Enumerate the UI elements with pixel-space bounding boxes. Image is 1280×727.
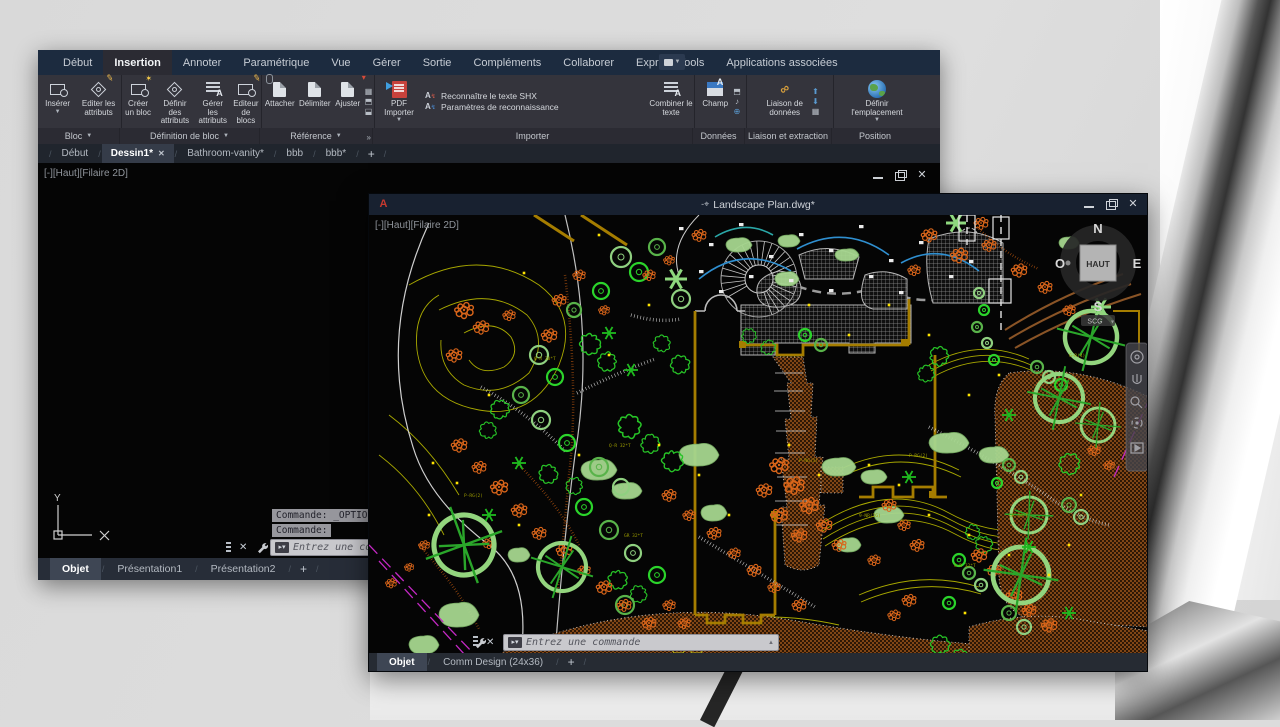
ole-object-icon[interactable]: ♪ xyxy=(735,98,739,106)
xref-frame-icon[interactable]: ▦ xyxy=(365,88,373,96)
landscape-plan-window: A -⌖ Landscape Plan.dwg* ✕ xyxy=(368,193,1148,672)
ribbon-tab-insertion[interactable]: Insertion xyxy=(103,50,171,75)
close-icon[interactable]: ✕ xyxy=(1127,199,1139,210)
svg-text:Q-R 32*T: Q-R 32*T xyxy=(609,443,631,449)
svg-text:G-R 30*T: G-R 30*T xyxy=(534,356,556,362)
minimize-icon[interactable] xyxy=(872,170,884,181)
pencil-icon: ✎ xyxy=(253,73,262,84)
data-link-button[interactable]: ∞ Liaison de données xyxy=(761,77,809,126)
workspace-icon xyxy=(664,59,673,66)
close-icon[interactable]: ✕ xyxy=(239,542,247,553)
recognize-shx-button[interactable]: Reconnaître le texte SHX xyxy=(425,91,537,101)
new-layout-button[interactable]: + xyxy=(560,653,583,671)
window-title: Landscape Plan.dwg* xyxy=(713,199,815,211)
define-attributes-button[interactable]: Définir des attributs xyxy=(156,77,194,126)
block-editor-button[interactable]: ✎ Editeur de blocs xyxy=(232,77,260,126)
adjust-button[interactable]: ▾ Ajuster xyxy=(334,77,362,126)
document-tab-bar: /Début/Dessin1*✕/Bathroom-vanity*/bbb/bb… xyxy=(38,144,940,163)
panel-caption-importer[interactable]: Importer xyxy=(373,128,693,144)
ribbon-tab-sortie[interactable]: Sortie xyxy=(412,50,463,75)
scroll-up-icon[interactable]: ▲ xyxy=(768,640,774,646)
text-lines-icon xyxy=(664,82,678,96)
block-icon xyxy=(131,84,146,95)
panel-bloc: Insérer ▼ ✎ Editer les attributs xyxy=(40,75,122,128)
underlay-layers-icon[interactable]: ⬒ xyxy=(365,98,373,106)
paperclip-icon xyxy=(266,74,273,84)
layout-tab-bar-front: Objet/Comm Design (24x36)/+/ xyxy=(369,653,1147,671)
compass-west[interactable]: O xyxy=(1055,256,1065,271)
panel-position: Définir l'emplacement ▼ xyxy=(834,75,920,128)
edit-attributes-button[interactable]: ✎ Editer les attributs xyxy=(77,77,120,126)
ribbon-tab-d-but[interactable]: Début xyxy=(52,50,103,75)
pin-icon: -⌖ xyxy=(701,199,709,211)
ribbon-tab-annoter[interactable]: Annoter xyxy=(172,50,233,75)
insert-block-icon xyxy=(50,84,65,95)
shrubs xyxy=(477,326,1083,653)
panel-caption-bloc[interactable]: Bloc▼ xyxy=(38,128,120,144)
compass-east[interactable]: E xyxy=(1133,256,1142,271)
snap-underlay-icon[interactable]: ⬓ xyxy=(365,108,373,116)
chain-link-icon: ∞ xyxy=(777,81,793,98)
compass-south[interactable]: S xyxy=(1094,299,1103,314)
compass-north[interactable]: N xyxy=(1093,221,1102,236)
ribbon-tab-vue[interactable]: Vue xyxy=(320,50,361,75)
ribbon-tab-param-trique[interactable]: Paramétrique xyxy=(232,50,320,75)
layout-tab-pr-sentation1[interactable]: Présentation1 xyxy=(105,558,194,580)
update-field-icon[interactable]: ⬒ xyxy=(733,88,741,96)
title-bar[interactable]: A -⌖ Landscape Plan.dwg* ✕ xyxy=(369,194,1147,215)
landscape-drawing[interactable]: G-R 30*TP-RG(2)GR 32*T9-NR(2G)G-R 32*TGR… xyxy=(369,215,1147,653)
adjust-marker-icon: ▾ xyxy=(362,74,366,83)
pdf-import-button[interactable]: PDF Importer ▼ xyxy=(376,77,422,126)
svg-text:GR 32*T: GR 32*T xyxy=(624,533,643,539)
document-icon xyxy=(341,82,354,97)
tab-separator: / xyxy=(583,657,588,667)
svg-text:P-RG(2): P-RG(2) xyxy=(909,453,928,459)
close-icon[interactable]: ✕ xyxy=(916,170,928,181)
panel-reference: Attacher Délimiter ▾ Ajuster ▦ ⬒ ⬓ » xyxy=(262,75,375,128)
navigation-bar[interactable] xyxy=(1126,343,1147,471)
combine-text-button[interactable]: Combiner le texte xyxy=(649,77,693,126)
clip-button[interactable]: Délimiter xyxy=(299,77,331,126)
viewport-controls-label[interactable]: [-][Haut][Filaire 2D] xyxy=(375,220,459,231)
layout-tab-pr-sentation2[interactable]: Présentation2 xyxy=(199,558,288,580)
viewport-controls-label[interactable]: [-][Haut][Filaire 2D] xyxy=(44,168,128,179)
command-placeholder: Entrez une commande xyxy=(526,637,640,648)
restore-icon[interactable] xyxy=(894,170,906,181)
customize-wrench-icon[interactable] xyxy=(255,541,268,554)
layout-tab-objet[interactable]: Objet xyxy=(50,558,101,580)
landscape-drawing-area[interactable]: G-R 30*TP-RG(2)GR 32*T9-NR(2G)G-R 32*TGR… xyxy=(369,215,1147,653)
shx-settings-icon xyxy=(425,102,437,112)
svg-text:Y: Y xyxy=(54,493,61,504)
ucs-menu[interactable]: SCG xyxy=(1087,319,1102,326)
command-toolbar: ✕ xyxy=(473,636,494,648)
doc-tab-bbb-[interactable]: bbb* xyxy=(317,144,356,163)
upload-data-icon[interactable]: ⬇ xyxy=(812,98,819,106)
drawing-window-controls: ✕ xyxy=(872,170,928,181)
ribbon-panel-captions: Bloc▼ Définition de bloc▼ Référence▼ Imp… xyxy=(38,128,940,144)
import-arrow-icon xyxy=(386,82,397,90)
svg-text:9-NR(2G): 9-NR(2G) xyxy=(859,513,881,519)
layout-tab-objet[interactable]: Objet xyxy=(377,653,427,671)
window-controls: ✕ xyxy=(1083,199,1139,210)
data-extra-tools: ⬒ ♪ ⊕ xyxy=(733,88,741,116)
new-layout-button[interactable]: + xyxy=(292,558,315,580)
globe-icon xyxy=(868,80,886,98)
hyperlink-icon[interactable]: ⊕ xyxy=(734,108,741,116)
drag-grip-icon[interactable] xyxy=(226,542,231,554)
panel-caption-definition[interactable]: Définition de bloc▼ xyxy=(120,128,260,144)
pdf-file-icon xyxy=(392,81,407,98)
extract-data-icon[interactable]: ⬆ xyxy=(812,88,819,96)
star-icon: ✶ xyxy=(145,75,152,84)
mulch-areas xyxy=(497,357,1147,653)
command-history-line: Commande: xyxy=(272,524,331,537)
panel-launcher-icon[interactable]: » xyxy=(367,133,371,142)
customize-wrench-icon[interactable] xyxy=(473,636,486,649)
new-drawing-button[interactable]: + xyxy=(360,144,383,163)
ribbon-tab-compl-ments[interactable]: Compléments xyxy=(462,50,552,75)
command-history-line: Commande: _OPTIONS xyxy=(272,509,383,522)
field-icon xyxy=(707,82,723,96)
chevron-down-icon: ▼ xyxy=(55,109,61,115)
command-input-front[interactable]: ▸▾ Entrez une commande ▲ xyxy=(503,634,779,651)
ribbon-tab-applications-associ-es[interactable]: Applications associées xyxy=(715,50,848,75)
shx-text-icon xyxy=(425,91,437,101)
panel-caption-donnees[interactable]: Données xyxy=(693,128,745,144)
layout-tab-comm-design-24x36-[interactable]: Comm Design (24x36) xyxy=(431,653,555,671)
document-icon xyxy=(273,82,286,97)
panel-caption-liaison[interactable]: Liaison et extraction xyxy=(745,128,832,144)
panel-liaison: ∞ Liaison de données ⬆ ⬇ ▦ xyxy=(747,75,834,128)
table-refresh-icon[interactable]: ▦ xyxy=(812,108,820,116)
attribute-tag-icon xyxy=(91,81,107,97)
panel-donnees: Champ ⬒ ♪ ⊕ xyxy=(695,75,747,128)
document-icon xyxy=(308,82,321,97)
close-icon[interactable]: ✕ xyxy=(486,637,494,648)
ucs-icon: Y xyxy=(44,491,114,551)
create-block-button[interactable]: ✶ Créer un bloc xyxy=(123,77,153,126)
chevron-down-icon: ▼ xyxy=(675,59,681,65)
attach-button[interactable]: Attacher xyxy=(264,77,296,126)
tab-separator: / xyxy=(315,564,320,574)
chevron-down-icon: ▾ xyxy=(1111,320,1114,326)
tab-separator: / xyxy=(383,149,388,159)
autocad-logo-icon: A xyxy=(377,198,390,211)
ribbon-tab-g-rer[interactable]: Gérer xyxy=(362,50,412,75)
desk-surface xyxy=(370,672,1130,720)
command-toolbar: ✕ xyxy=(226,541,268,554)
maximize-icon[interactable] xyxy=(1105,199,1117,210)
svg-text:GR 30*T: GR 30*T xyxy=(1009,513,1028,519)
extraction-tools: ⬆ ⬇ ▦ xyxy=(812,88,820,116)
ribbon-tab-bar: DébutInsertionAnnoterParamétriqueVueGére… xyxy=(38,50,940,75)
attribute-list-icon xyxy=(206,82,220,96)
doc-tab-dessin1-[interactable]: Dessin1*✕ xyxy=(102,144,174,163)
ribbon-body: Insérer ▼ ✎ Editer les attributs ✶ Créer… xyxy=(38,75,940,128)
chevron-down-icon: ▼ xyxy=(396,117,402,123)
chevron-down-icon: ▼ xyxy=(874,117,880,123)
workspace-switcher[interactable]: ▼ xyxy=(659,54,685,70)
svg-text:P-RG(2): P-RG(2) xyxy=(464,493,483,499)
panel-caption-position[interactable]: Position xyxy=(832,128,918,144)
svg-text:P-RG(3): P-RG(3) xyxy=(799,458,818,464)
block-icon xyxy=(238,84,253,95)
minimize-icon[interactable] xyxy=(1083,199,1095,210)
field-button[interactable]: Champ xyxy=(700,77,730,126)
panel-caption-reference[interactable]: Référence▼ xyxy=(260,128,373,144)
manage-attributes-button[interactable]: Gérer les attributs xyxy=(197,77,229,126)
attribute-tag-icon xyxy=(167,81,183,97)
svg-text:G-R 32*T: G-R 32*T xyxy=(954,563,976,569)
panel-definition-bloc: ✶ Créer un bloc Définir des attributs Gé… xyxy=(122,75,262,128)
set-location-button[interactable]: Définir l'emplacement ▼ xyxy=(846,77,908,126)
panel-importer: PDF Importer ▼ Reconnaître le texte SHX … xyxy=(375,75,695,128)
ribbon-tab-collaborer[interactable]: Collaborer xyxy=(552,50,625,75)
close-icon[interactable]: ✕ xyxy=(158,149,165,158)
doc-tab-d-but[interactable]: Début xyxy=(53,144,98,163)
doc-tab-bbb[interactable]: bbb xyxy=(277,144,312,163)
command-prompt-icon[interactable]: ▸▾ xyxy=(508,637,522,648)
svg-text:G-R(4): G-R(4) xyxy=(1069,353,1085,359)
viewcube-top-face[interactable]: HAUT xyxy=(1086,259,1110,269)
recognition-settings-button[interactable]: Paramètres de reconnaissance xyxy=(425,102,559,112)
doc-tab-bathroom-vanity-[interactable]: Bathroom-vanity* xyxy=(178,144,273,163)
reference-extra-tools: ▦ ⬒ ⬓ xyxy=(365,88,373,116)
command-prompt-icon[interactable]: ▸▾ xyxy=(275,542,289,553)
insert-button[interactable]: Insérer ▼ xyxy=(41,77,74,126)
pencil-icon: ✎ xyxy=(105,73,114,84)
